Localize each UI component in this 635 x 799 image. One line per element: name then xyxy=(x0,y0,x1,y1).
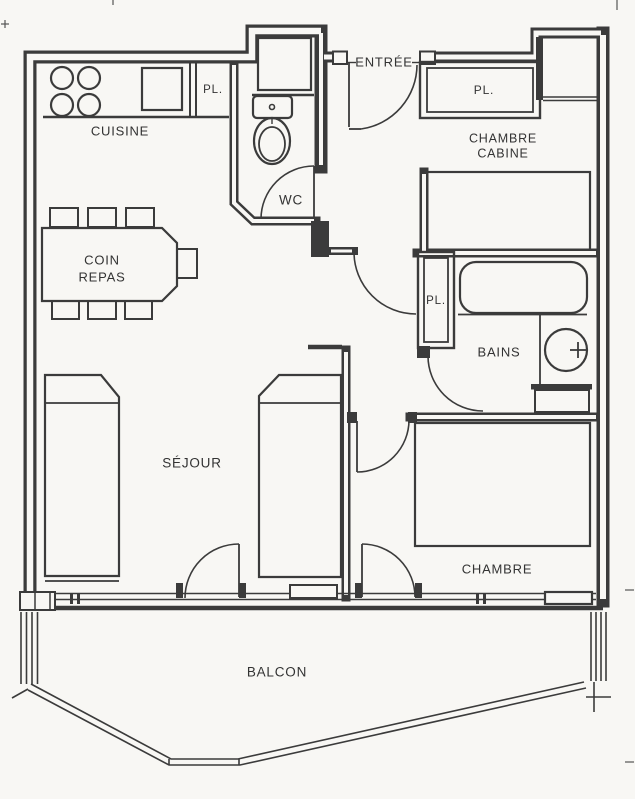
chair xyxy=(125,301,152,319)
bath-cabinet xyxy=(535,390,589,412)
room-label-coin-repas-1: COIN xyxy=(84,252,120,267)
toilet-icon xyxy=(253,96,292,164)
cabine-bed xyxy=(423,172,590,250)
bains-door xyxy=(428,356,483,411)
room-label-bains: BAINS xyxy=(477,344,520,359)
chair xyxy=(88,208,116,227)
window-band xyxy=(20,585,603,610)
room-label-wc: WC xyxy=(279,193,303,208)
room-label-chambre-cabine-1: CHAMBRE xyxy=(469,131,537,145)
chair xyxy=(50,208,78,227)
balcony-railing xyxy=(12,612,611,765)
wc-fixtures xyxy=(252,38,314,164)
chair xyxy=(52,301,79,319)
kitchen-fixtures xyxy=(43,63,229,117)
floor-plan-page: ENTRÉE CUISINE PL. WC CHAMBRE CABINE PL.… xyxy=(0,0,635,799)
room-label-chambre: CHAMBRE xyxy=(462,561,533,576)
chambre-door xyxy=(357,420,409,472)
bathtub-icon xyxy=(460,262,587,313)
room-label-sejour: SÉJOUR xyxy=(162,456,222,471)
floor-plan-canvas: ENTRÉE CUISINE PL. WC CHAMBRE CABINE PL.… xyxy=(0,0,635,799)
bed-sofa-right xyxy=(259,375,341,577)
sill-right xyxy=(545,592,592,604)
bed-sofa-left xyxy=(45,375,119,576)
wc-shelf xyxy=(258,38,311,90)
chair xyxy=(126,208,154,227)
kitchen-sink-icon xyxy=(142,68,182,110)
closet-label-cuisine: PL. xyxy=(203,84,223,96)
room-label-balcon: BALCON xyxy=(247,665,307,680)
hall-door xyxy=(354,252,416,314)
chair xyxy=(177,249,197,278)
room-label-cuisine: CUISINE xyxy=(91,123,149,138)
entry-jamb-left xyxy=(333,52,347,65)
room-label-entree: ENTRÉE xyxy=(355,54,413,69)
closet-label-cabine: PL. xyxy=(474,83,494,97)
chambre-bed xyxy=(415,423,590,546)
chair xyxy=(88,301,116,319)
closet-label-bains: PL. xyxy=(426,295,446,307)
bathroom-fixtures xyxy=(458,262,592,412)
sejour-furniture xyxy=(45,375,341,581)
stove-burners-icon xyxy=(51,67,100,116)
entry-door xyxy=(348,63,421,130)
washbasin-icon xyxy=(545,329,587,371)
closet-nook-shelf xyxy=(543,97,598,101)
chambre-balcony-door xyxy=(362,544,415,597)
bath-cabinet-edge xyxy=(531,384,592,390)
window-panel xyxy=(290,585,337,598)
room-label-chambre-cabine-2: CABINE xyxy=(477,146,528,160)
sejour-balcony-door xyxy=(185,544,239,598)
room-label-coin-repas-2: REPAS xyxy=(78,269,125,284)
